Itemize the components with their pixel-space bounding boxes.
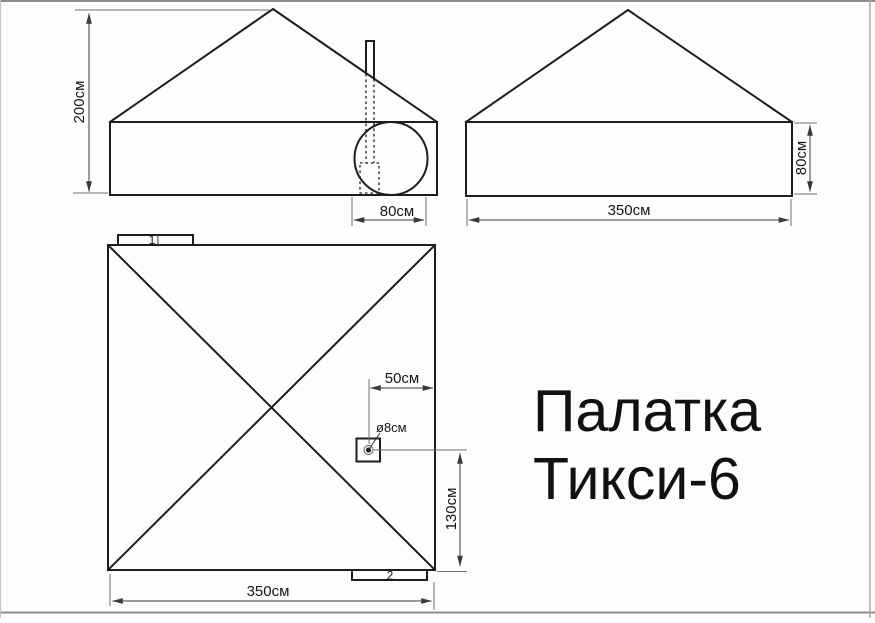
front-entrance-dimension: 80см <box>352 197 426 226</box>
page-border <box>0 0 875 618</box>
plan-view: 1 2 50см ø8см <box>108 233 467 610</box>
side-width-dimension-label: 350см <box>608 202 651 219</box>
front-view: 200см 80см <box>71 9 437 226</box>
front-wall-outline <box>110 122 437 195</box>
stove-offset-dimension-label: 50см <box>385 370 420 387</box>
plan-tab-2: 2 <box>352 569 427 583</box>
front-entrance-dimension-label: 80см <box>380 203 415 220</box>
plan-tab-1: 1 <box>118 233 193 247</box>
tent-drawing-page: 200см 80см 350см <box>0 0 875 618</box>
side-roof-outline <box>466 10 792 122</box>
front-height-dimension: 200см <box>71 10 271 193</box>
pipe-diameter-label: ø8см <box>376 420 407 435</box>
stove-height-dimension-label: 130см <box>443 488 460 531</box>
side-wall-height-dimension-label: 80см <box>793 141 810 176</box>
drawing-canvas: 200см 80см 350см <box>0 0 875 618</box>
drawing-title-line1: Палатка <box>533 378 761 444</box>
front-roof-outline <box>110 9 437 122</box>
pipe-diameter-callout: ø8см <box>370 420 407 449</box>
side-wall-outline <box>466 122 792 196</box>
drawing-title-line2: Тикси-6 <box>533 446 741 512</box>
drawing-title: Палатка Тикси-6 <box>533 378 761 512</box>
side-view: 350см 80см <box>466 10 817 226</box>
plan-tab-2-label: 2 <box>387 569 394 583</box>
side-width-dimension: 350см <box>467 199 791 226</box>
side-wall-height-dimension: 80см <box>793 123 817 194</box>
stove-height-dimension: 130см <box>374 450 467 572</box>
front-height-dimension-label: 200см <box>71 81 88 124</box>
plan-tab-1-label: 1 <box>149 233 156 247</box>
plan-width-dimension-label: 350см <box>247 583 290 600</box>
